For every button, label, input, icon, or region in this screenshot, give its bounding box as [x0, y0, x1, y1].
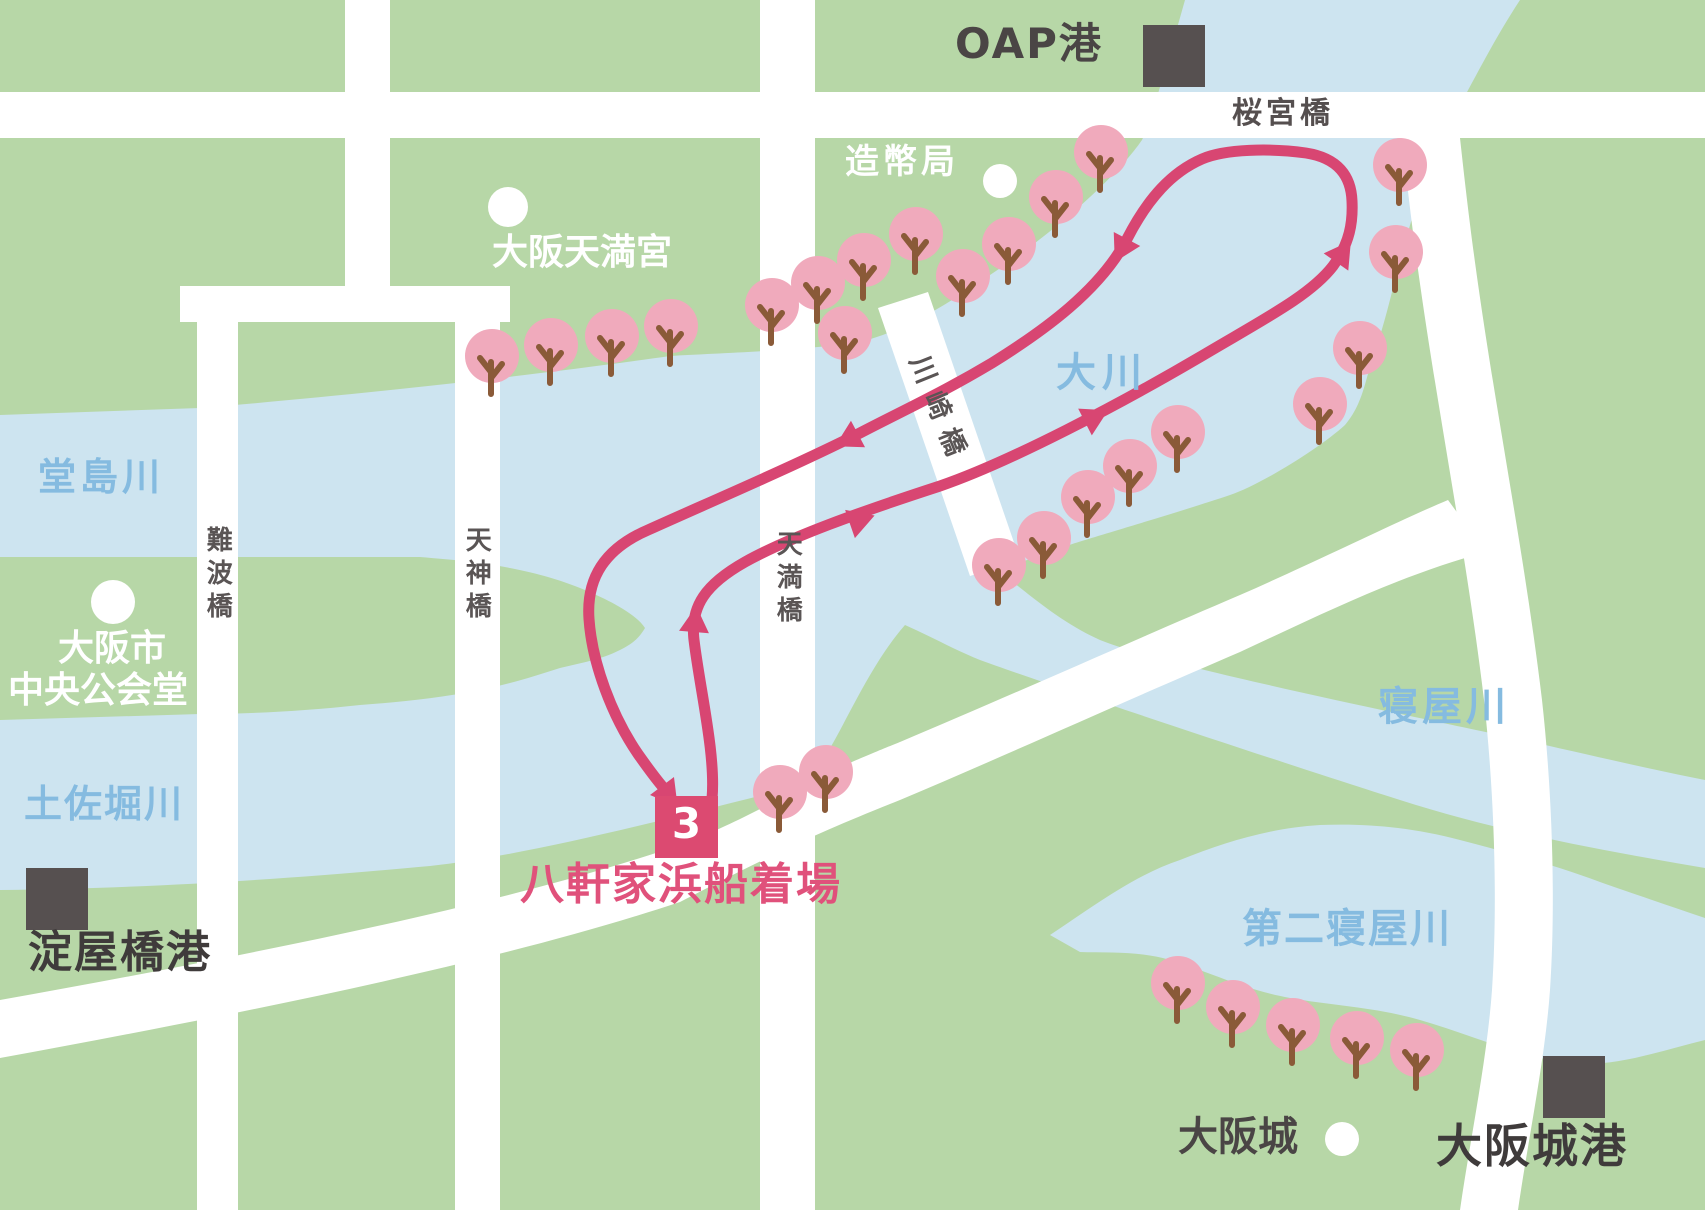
city-hall-dot-icon[interactable] — [91, 580, 135, 624]
tenjin-bridge-label: 天神橋 — [462, 526, 489, 625]
city-hall-label-line1: 大阪市 — [58, 630, 166, 668]
yodoyabashi-port-label: 淀屋橋港 — [28, 930, 212, 976]
osaka-river-cruise-map: OAP港 桜宮橋 造幣局 大阪天満宮 大川 川崎橋 堂島川 難波橋 天神橋 天満… — [0, 0, 1705, 1210]
osaka-castle-port-square-icon[interactable] — [1543, 1056, 1605, 1118]
tenjin-bridge-road — [455, 286, 500, 1210]
pier-3-number: 3 — [655, 802, 718, 846]
dojima-river-label: 堂島川 — [38, 458, 164, 498]
city-hall-label-line2: 中央公会堂 — [8, 672, 188, 710]
osaka-tenmangu-label: 大阪天満宮 — [492, 234, 672, 272]
mint-bureau-label: 造幣局 — [845, 145, 959, 181]
hachikenyahama-pier-label: 八軒家浜船着場 — [520, 862, 842, 908]
mint-bureau-dot-icon[interactable] — [983, 164, 1017, 198]
osaka-castle-dot-icon[interactable] — [1325, 1122, 1359, 1156]
naniwa-bridge-label: 難波橋 — [203, 526, 230, 625]
oap-port-square-icon[interactable] — [1143, 25, 1205, 87]
tenmangu-dot-icon[interactable] — [488, 187, 528, 227]
sakuranomiya-bridge-road — [0, 92, 1705, 138]
yodoyabashi-port-square-icon[interactable] — [26, 868, 88, 930]
tosabori-river-label: 土佐堀川 — [24, 785, 184, 825]
daini-neya-river-label: 第二寝屋川 — [1242, 908, 1452, 950]
naniwa-bridge-road — [197, 286, 238, 1210]
neya-river-label: 寝屋川 — [1378, 686, 1510, 728]
okawa-river-label: 大川 — [1056, 352, 1148, 394]
sakuranomiya-bridge-label: 桜宮橋 — [1232, 98, 1334, 130]
osaka-castle-port-label: 大阪城港 — [1436, 1122, 1628, 1170]
oap-port-label: OAP港 — [955, 22, 1103, 66]
osaka-castle-label: 大阪城 — [1178, 1116, 1298, 1158]
vertical-road-north — [345, 0, 390, 292]
tenma-bridge-label: 天満橋 — [773, 530, 800, 629]
